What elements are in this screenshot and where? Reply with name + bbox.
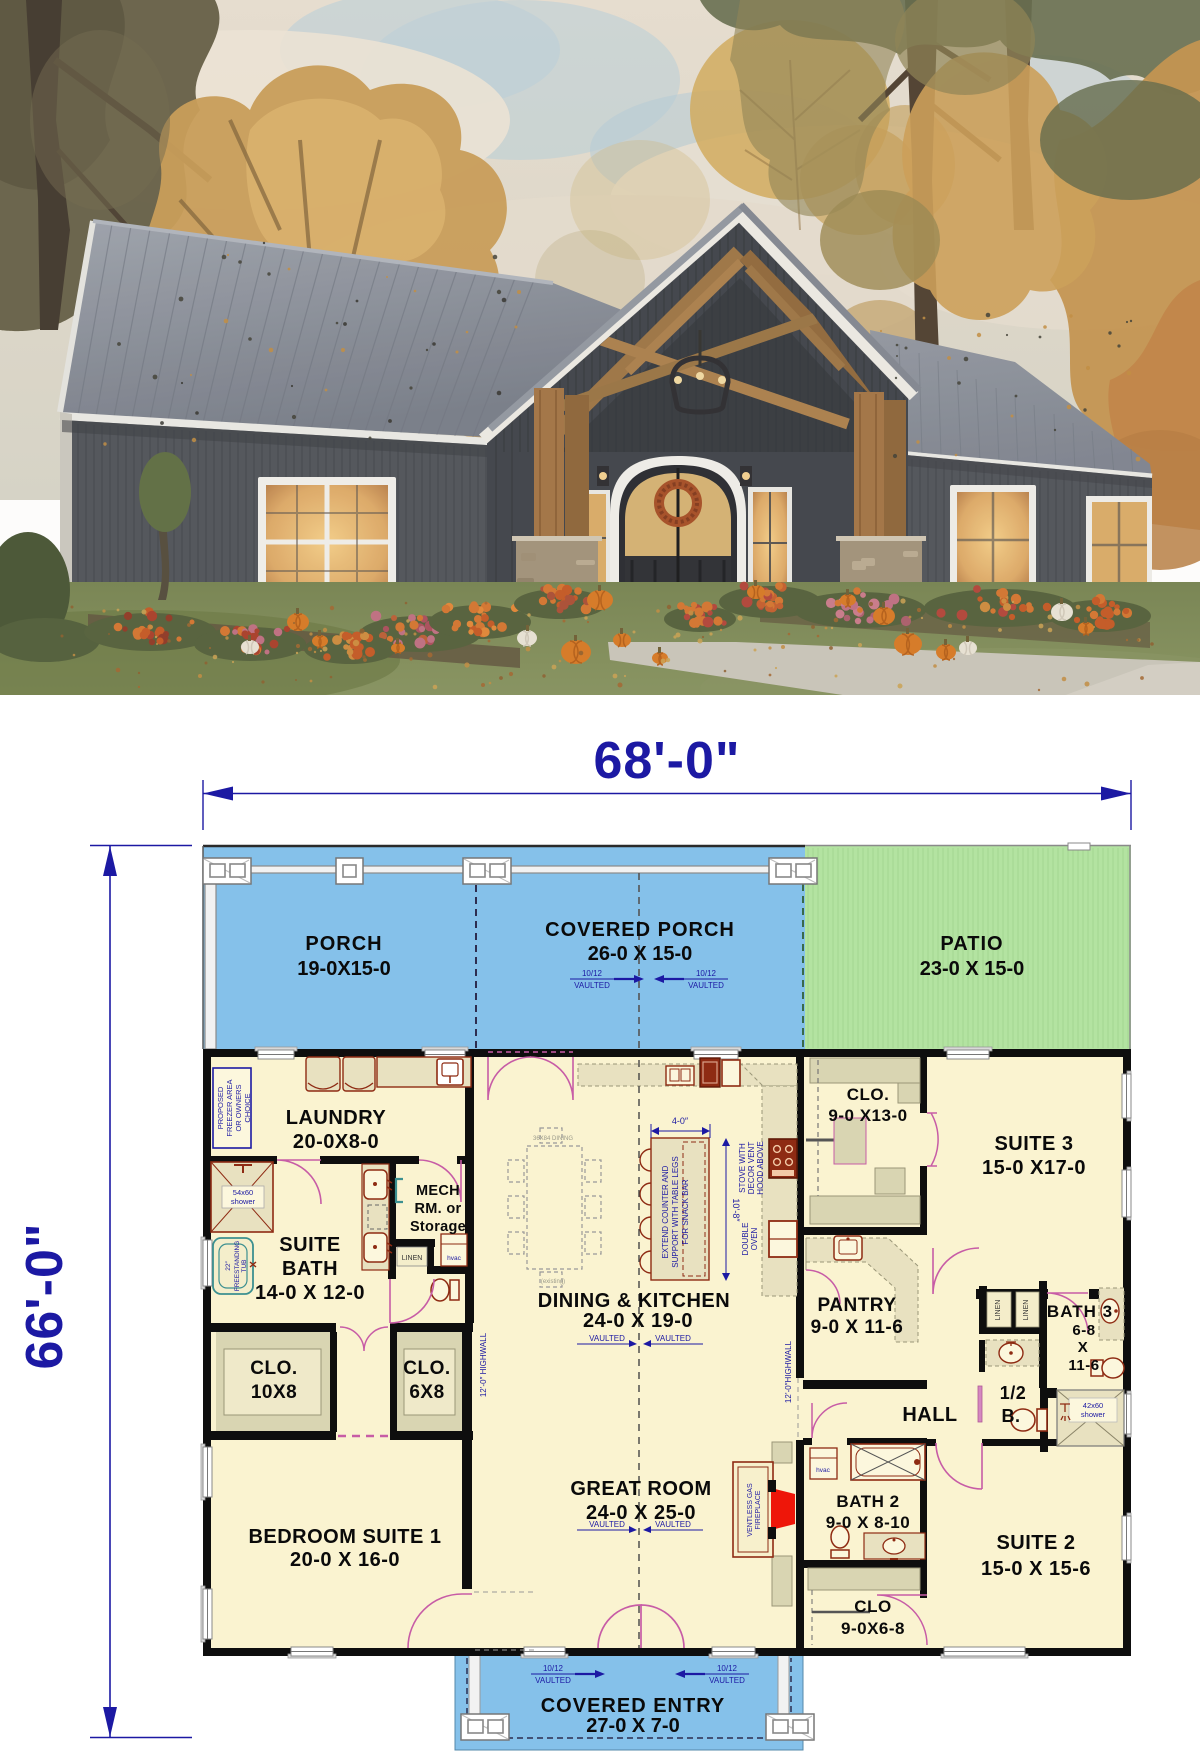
svg-text:CHOICE: CHOICE <box>243 1093 252 1122</box>
svg-text:19-0X15-0: 19-0X15-0 <box>297 958 390 980</box>
svg-text:Storage: Storage <box>410 1219 466 1235</box>
svg-text:VAULTED: VAULTED <box>709 1676 745 1685</box>
svg-text:FREESTANDING: FREESTANDING <box>234 1241 241 1291</box>
svg-text:14-0 X 12-0: 14-0 X 12-0 <box>255 1282 365 1304</box>
svg-text:SUPPORT WITH TABLE LEGS: SUPPORT WITH TABLE LEGS <box>671 1156 680 1267</box>
svg-text:RM. or: RM. or <box>415 1201 462 1217</box>
svg-text:LINEN: LINEN <box>1023 1300 1030 1321</box>
svg-text:PROPOSED: PROPOSED <box>216 1086 225 1129</box>
svg-text:10/12: 10/12 <box>582 969 603 978</box>
svg-text:1/2: 1/2 <box>1000 1383 1027 1403</box>
svg-text:10’-8″: 10’-8″ <box>731 1198 741 1222</box>
svg-text:OVEN: OVEN <box>750 1227 759 1250</box>
svg-text:20-0X8-0: 20-0X8-0 <box>293 1131 379 1153</box>
svg-text:BEDROOM SUITE 1: BEDROOM SUITE 1 <box>248 1526 441 1548</box>
svg-text:CLO: CLO <box>854 1597 891 1616</box>
svg-text:LAUNDRY: LAUNDRY <box>286 1107 387 1129</box>
svg-text:(existing): (existing) <box>541 1279 565 1285</box>
svg-text:hvac: hvac <box>816 1467 830 1474</box>
svg-text:10X8: 10X8 <box>251 1382 297 1403</box>
svg-text:BATH: BATH <box>282 1258 338 1280</box>
svg-text:MECH: MECH <box>416 1183 460 1199</box>
svg-text:27-0 X 7-0: 27-0 X 7-0 <box>586 1715 679 1737</box>
svg-text:12’-0″HIGHWALL: 12’-0″HIGHWALL <box>784 1340 793 1403</box>
svg-text:24-0 X 25-0: 24-0 X 25-0 <box>586 1502 696 1524</box>
svg-text:11-6: 11-6 <box>1068 1357 1099 1374</box>
svg-text:SUITE 3: SUITE 3 <box>994 1133 1073 1155</box>
svg-text:SUITE: SUITE <box>279 1234 340 1256</box>
svg-text:9-0 X13-0: 9-0 X13-0 <box>828 1106 907 1125</box>
svg-text:PORCH: PORCH <box>305 933 382 955</box>
svg-text:20-0 X 16-0: 20-0 X 16-0 <box>290 1549 400 1571</box>
svg-text:15-0 X17-0: 15-0 X17-0 <box>982 1157 1086 1179</box>
svg-text:shower: shower <box>231 1197 256 1206</box>
svg-text:VAULTED: VAULTED <box>574 981 610 990</box>
svg-text:10/12: 10/12 <box>543 1664 564 1673</box>
svg-text:DINING & KITCHEN: DINING & KITCHEN <box>538 1290 730 1312</box>
svg-text:42x60: 42x60 <box>1083 1401 1103 1410</box>
svg-text:9-0X6-8: 9-0X6-8 <box>841 1619 905 1638</box>
svg-text:B.: B. <box>1002 1406 1021 1426</box>
svg-text:10/12: 10/12 <box>696 969 717 978</box>
svg-text:26-0 X 15-0: 26-0 X 15-0 <box>588 943 693 965</box>
svg-text:LINEN: LINEN <box>995 1300 1002 1321</box>
svg-text:FOR SNACK BAR: FOR SNACK BAR <box>681 1179 690 1245</box>
svg-text:6X8: 6X8 <box>409 1382 444 1403</box>
svg-text:SUITE 2: SUITE 2 <box>996 1532 1075 1554</box>
svg-text:BATH 2: BATH 2 <box>836 1492 899 1511</box>
svg-text:OR OWNERS: OR OWNERS <box>234 1084 243 1131</box>
svg-text:STOVE WITH: STOVE WITH <box>738 1143 747 1193</box>
svg-text:VAULTED: VAULTED <box>589 1334 625 1343</box>
svg-text:CLO.: CLO. <box>847 1085 890 1104</box>
svg-text:DECOR VENT: DECOR VENT <box>747 1142 756 1195</box>
svg-text:15-0 X 15-6: 15-0 X 15-6 <box>981 1558 1091 1580</box>
svg-text:VAULTED: VAULTED <box>535 1676 571 1685</box>
svg-text:66'-0": 66'-0" <box>16 1222 74 1369</box>
svg-text:HALL: HALL <box>902 1404 957 1426</box>
svg-text:4-0″: 4-0″ <box>672 1116 689 1126</box>
svg-text:FREEZER AREA: FREEZER AREA <box>225 1079 234 1136</box>
svg-text:10/12: 10/12 <box>717 1664 738 1673</box>
svg-text:VAULTED: VAULTED <box>688 981 724 990</box>
svg-text:TUB: TUB <box>241 1260 248 1273</box>
svg-text:FIREPLACE: FIREPLACE <box>755 1490 762 1529</box>
svg-text:22″: 22″ <box>225 1261 232 1271</box>
svg-text:HOOD ABOVE: HOOD ABOVE <box>756 1141 765 1194</box>
svg-text:68'-0": 68'-0" <box>593 732 740 790</box>
svg-text:CLO.: CLO. <box>250 1358 297 1379</box>
svg-text:VENTLESS GAS: VENTLESS GAS <box>747 1483 754 1537</box>
svg-text:PANTRY: PANTRY <box>818 1295 897 1316</box>
svg-text:COVERED PORCH: COVERED PORCH <box>545 919 735 941</box>
svg-text:6-8: 6-8 <box>1072 1322 1095 1339</box>
svg-text:CLO.: CLO. <box>403 1358 450 1379</box>
svg-text:GREAT ROOM: GREAT ROOM <box>570 1478 711 1500</box>
svg-text:BATH 3: BATH 3 <box>1047 1302 1113 1321</box>
svg-text:54x60: 54x60 <box>233 1188 253 1197</box>
svg-text:DOUBLE: DOUBLE <box>741 1223 750 1256</box>
svg-text:9-0 X 8-10: 9-0 X 8-10 <box>826 1513 910 1532</box>
svg-text:36X84 DINING: 36X84 DINING <box>533 1136 573 1142</box>
svg-text:EXTEND COUNTER AND: EXTEND COUNTER AND <box>661 1165 670 1258</box>
svg-text:23-0 X 15-0: 23-0 X 15-0 <box>920 958 1025 980</box>
svg-text:9-0 X 11-6: 9-0 X 11-6 <box>811 1317 904 1338</box>
svg-text:X: X <box>1078 1339 1089 1356</box>
svg-text:shower: shower <box>1081 1410 1106 1419</box>
svg-text:hvac: hvac <box>447 1255 461 1262</box>
svg-text:24-0 X 19-0: 24-0 X 19-0 <box>583 1310 693 1332</box>
svg-text:12’-0″ HIGHWALL: 12’-0″ HIGHWALL <box>479 1332 488 1397</box>
svg-text:LINEN: LINEN <box>402 1255 423 1262</box>
svg-text:VAULTED: VAULTED <box>655 1334 691 1343</box>
svg-text:PATIO: PATIO <box>940 933 1003 955</box>
svg-text:COVERED ENTRY: COVERED ENTRY <box>541 1695 726 1717</box>
